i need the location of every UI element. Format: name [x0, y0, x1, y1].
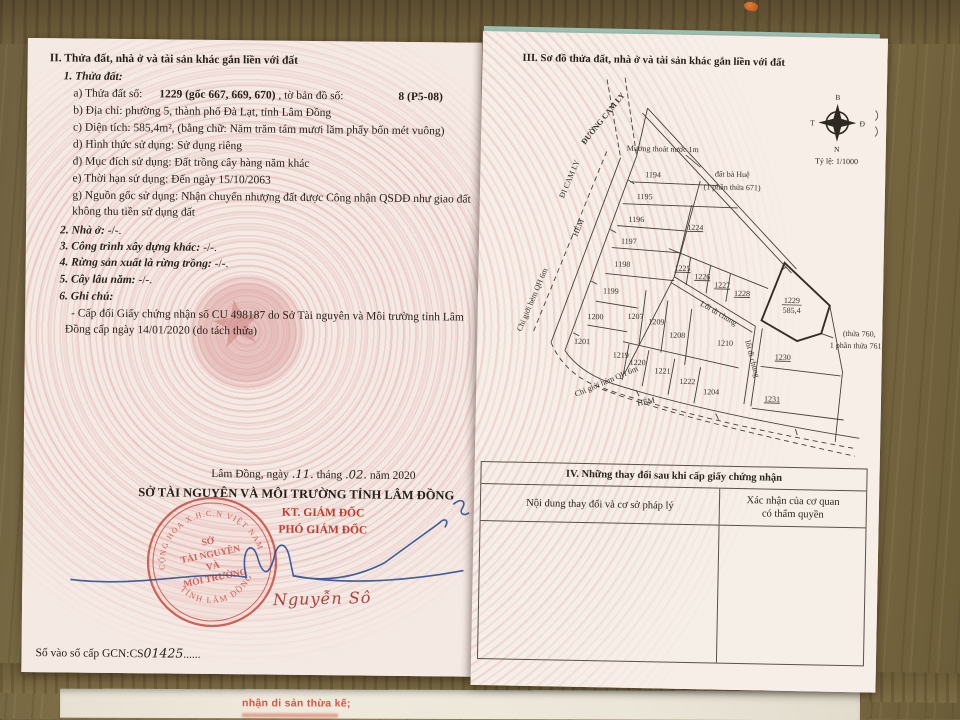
compass-icon: B Đ N T — [809, 92, 866, 154]
parcel-1207: 1207 — [627, 312, 643, 321]
parcel-1231: 1231 — [764, 394, 780, 403]
plot-number: 1229 (gốc 667, 669, 670) — [159, 88, 275, 101]
parcel-1204: 1204 — [703, 387, 719, 396]
item3-value: -/-. — [203, 242, 217, 254]
drain-label: Mương thoát nước 1m — [627, 144, 700, 154]
plot-line-c: c) Diện tích: 585,4m², (bằng chữ: Năm tr… — [73, 121, 444, 137]
book-entry-line: Số vào sổ cấp GCN:CS01425...... — [35, 644, 200, 661]
item5-line: 5. Cây lâu năm: -/-. — [59, 273, 152, 286]
section4-body-row — [478, 521, 866, 665]
parcel-1220: 1220 — [630, 358, 646, 367]
parcel-1208: 1208 — [669, 331, 685, 340]
compass-south: N — [834, 145, 840, 154]
book-entry-prefix: CS — [129, 648, 143, 660]
certificate-right-page: III. Sơ đồ thửa đất, nhà ở và tài sản kh… — [470, 31, 887, 693]
parcel-1194: 1194 — [645, 170, 661, 179]
map-lines — [531, 76, 866, 456]
parcel-1225: 1225 — [674, 264, 690, 273]
date-mid: tháng — [317, 469, 343, 481]
neighbor-right-label1: (thửa 760, — [843, 329, 876, 339]
boundary-left-label: Chỉ giới hẻm QH 6m — [515, 266, 550, 333]
item4-value: -/-. — [215, 258, 229, 270]
parcel-1197: 1197 — [621, 237, 637, 246]
seal-svg: CỘNG HÒA X.H.C.N VIỆT NAM TỈNH LÂM ĐỒNG … — [130, 480, 295, 645]
map-sheet-number: 8 (P5-08) — [398, 91, 443, 103]
item2-value: -/-. — [108, 225, 122, 237]
book-entry-dots: ...... — [183, 649, 200, 661]
section4-body-col1 — [478, 521, 720, 663]
common-path-label2: lối đi chung — [743, 339, 762, 378]
item5-label: 5. Cây lâu năm: — [59, 273, 135, 286]
date-month: .02. — [345, 467, 367, 481]
book-entry-label: Số vào sổ cấp GCN: — [35, 647, 129, 660]
main-parcel-label: 1229 585,4 — [782, 296, 802, 315]
parcel-1209: 1209 — [648, 317, 664, 326]
plot-line-d: d) Hình thức sử dụng: Sử dụng riêng — [73, 138, 242, 152]
neighbor-top-label1: đất bà Huệ — [715, 169, 750, 179]
parcel-1228: 1228 — [734, 289, 750, 298]
parcel-1224: 1224 — [687, 223, 703, 232]
item4-label: 4. Rừng sản xuất là rừng trồng: — [60, 256, 212, 270]
parcel-1201: 1201 — [574, 337, 590, 346]
certificate-left-page: ★ II. Thửa đất, nhà ở và tài sản khác gắ… — [21, 38, 482, 677]
compass-east: Đ — [859, 119, 865, 128]
plot-line-g1: g) Nguồn gốc sử dụng: Nhận chuyển nhượng… — [72, 189, 470, 205]
item3-label: 3. Công trình xây dựng khác: — [60, 240, 201, 253]
road-cam-ly-label: ĐƯỜNG CAM LY — [579, 90, 627, 146]
parcel-1219: 1219 — [613, 351, 629, 360]
underlying-sheet: nhận di sản thừa kế; — [60, 689, 860, 720]
section4-col2-line2: có thẩm quyền — [762, 507, 824, 521]
main-parcel-area: 585,4 — [783, 306, 801, 315]
parcel-1199: 1199 — [603, 286, 619, 295]
parcel-1195: 1195 — [637, 192, 653, 201]
official-seal: CỘNG HÒA X.H.C.N VIỆT NAM TỈNH LÂM ĐỒNG … — [130, 480, 296, 650]
compass-west: T — [810, 118, 815, 127]
item6-label: 6. Ghi chú: — [59, 290, 113, 303]
parcel-1198: 1198 — [614, 260, 630, 269]
item2-line: 2. Nhà ở: -/-. — [60, 224, 122, 237]
note-line2: Đồng cấp ngày 14/01/2020 (do tách thửa) — [65, 323, 257, 337]
compass-north: B — [835, 93, 840, 102]
plot-a-label: a) Thửa đất số: — [73, 87, 142, 100]
item2-label: 2. Nhà ở: — [60, 224, 105, 236]
parcel-1210: 1210 — [717, 339, 733, 348]
plot-line-e: e) Thời hạn sử dụng: Đến ngày 15/10/2063 — [72, 172, 270, 186]
item3-line: 3. Công trình xây dựng khác: -/-. — [60, 240, 217, 254]
map-scale-label: Tỷ lệ: 1/1000 — [815, 156, 858, 166]
signer-name: Nguyễn Sô — [232, 587, 412, 610]
main-parcel-number: 1229 — [784, 296, 800, 305]
date-day: .11. — [292, 467, 314, 481]
plot-line-b: b) Địa chỉ: phường 5, thành phố Đà Lạt, … — [73, 104, 331, 119]
di-cam-ly-label: ĐI CAM LY — [557, 158, 581, 199]
margin-pen-marks — [875, 111, 878, 137]
note-line1: - Cấp đổi Giấy chứng nhận số CU 498187 d… — [71, 307, 464, 323]
parcel-1227: 1227 — [714, 280, 730, 289]
date-line: Lâm Đồng, ngày .11. tháng .02. năm 2020 — [163, 465, 463, 482]
parcel-1222: 1222 — [679, 377, 695, 386]
parcel-1230: 1230 — [775, 353, 791, 362]
plot-line-dd: đ) Mục đích sử dụng: Đất trồng cây hàng … — [73, 155, 310, 169]
section4-col2-header: Xác nhận của cơ quan có thẩm quyền — [720, 489, 867, 528]
section4-col1-header: Nội dung thay đổi và cơ sở pháp lý — [481, 484, 721, 525]
parcel-1226: 1226 — [694, 272, 710, 281]
parcel-1200: 1200 — [587, 312, 603, 321]
book-entry-number: 01425 — [143, 645, 183, 660]
underlying-sheet-red-text: nhận di sản thừa kế; — [242, 697, 351, 709]
alley-left-label: HẺM — [570, 217, 586, 237]
underlying-sheet-red-smudge — [242, 713, 338, 717]
plot-heading: 1. Thửa đất: — [64, 70, 123, 83]
item5-value: -/-. — [138, 274, 152, 286]
plot-line-a: a) Thửa đất số: 1229 (gốc 667, 669, 670)… — [73, 87, 443, 103]
plot-line-g2: không thu tiền sử dụng đất — [72, 205, 195, 218]
section2-title: II. Thửa đất, nhà ở và tài sản khác gắn … — [50, 52, 298, 67]
neighbor-right-label2: 1 phần thửa 761) — [830, 341, 885, 351]
section4-col2-line1: Xác nhận của cơ quan — [746, 494, 839, 509]
alley-bottom-label: HẺM — [636, 395, 655, 408]
section4-table: IV. Những thay đổi sau khi cấp giấy chứn… — [477, 461, 868, 666]
date-suffix: năm 2020 — [370, 470, 416, 482]
date-prefix: Lâm Đồng, ngày — [211, 468, 289, 481]
section4-body-col2 — [717, 526, 866, 666]
parcel-1221: 1221 — [654, 366, 670, 375]
neighbor-top-label2: (1 phần thửa 671) — [703, 182, 760, 192]
item4-line: 4. Rừng sản xuất là rừng trồng: -/-. — [60, 256, 229, 270]
plot-a-sep: , tờ bản đồ số: — [278, 90, 343, 103]
parcel-1196: 1196 — [628, 215, 644, 224]
